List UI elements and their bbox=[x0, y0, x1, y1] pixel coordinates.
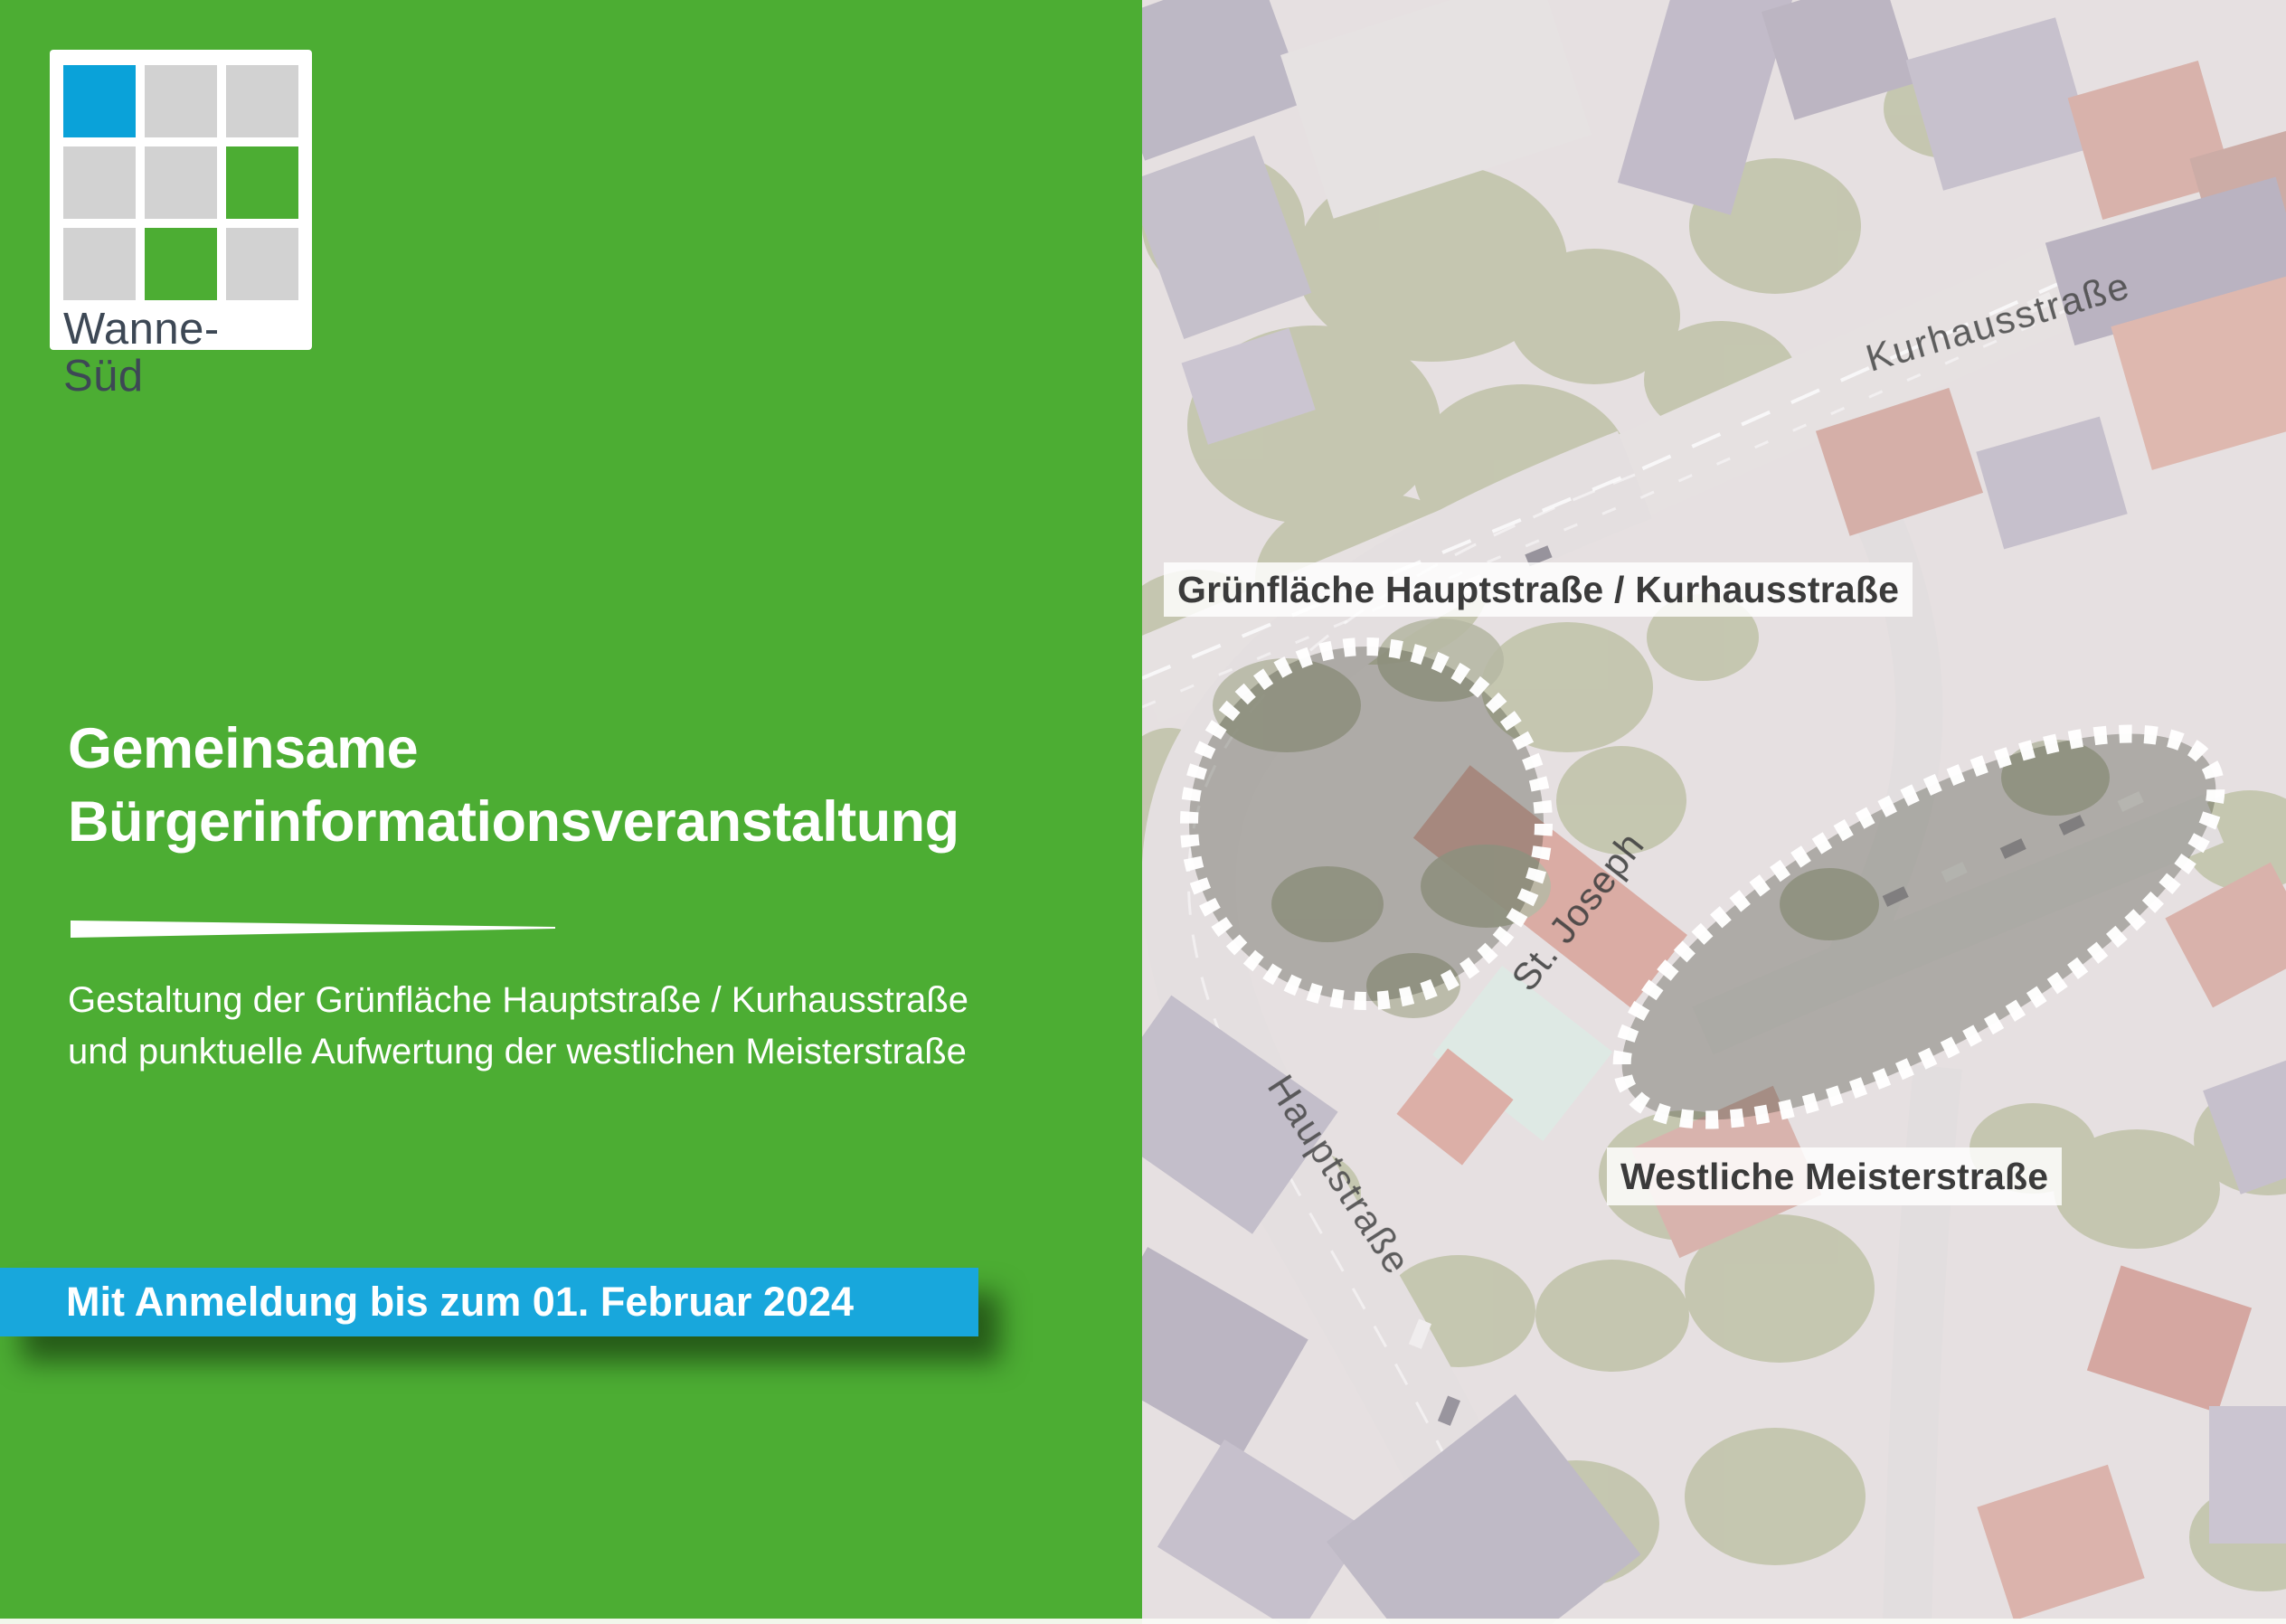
logo-square bbox=[145, 65, 217, 137]
subtitle-line-2: und punktuelle Aufwertung der westlichen… bbox=[68, 1026, 968, 1078]
logo-square bbox=[145, 146, 217, 219]
aerial-map-graphic: Kurhausstraße Hauptstraße St. Joseph bbox=[1142, 0, 2286, 1624]
logo-square bbox=[226, 228, 298, 300]
logo-square bbox=[145, 228, 217, 300]
logo-square bbox=[63, 228, 136, 300]
subtitle: Gestaltung der Grünfläche Hauptstraße / … bbox=[68, 975, 968, 1078]
flyer: Wanne-Süd Gemeinsame Bürgerinformationsv… bbox=[0, 0, 2286, 1624]
logo-wordmark: Wanne-Süd bbox=[63, 306, 298, 400]
left-panel: Wanne-Süd Gemeinsame Bürgerinformationsv… bbox=[0, 0, 1142, 1624]
logo-square bbox=[63, 146, 136, 219]
wanne-sued-logo: Wanne-Süd bbox=[50, 50, 312, 350]
zone-label-meisterstrasse: Westliche Meisterstraße bbox=[1607, 1147, 2062, 1205]
logo-square bbox=[226, 146, 298, 219]
title-line-1: Gemeinsame bbox=[68, 713, 959, 786]
page-title: Gemeinsame Bürgerinformationsveranstaltu… bbox=[68, 713, 959, 859]
logo-grid-icon bbox=[63, 65, 298, 300]
title-line-2: Bürgerinformationsveranstaltung bbox=[68, 786, 959, 859]
zone-label-green-space: Grünfläche Hauptstraße / Kurhausstraße bbox=[1164, 562, 1913, 617]
registration-banner: Mit Anmeldung bis zum 01. Februar 2024 bbox=[0, 1268, 978, 1336]
aerial-map: Kurhausstraße Hauptstraße St. Joseph Grü… bbox=[1142, 0, 2286, 1624]
logo-square bbox=[63, 65, 136, 137]
subtitle-line-1: Gestaltung der Grünfläche Hauptstraße / … bbox=[68, 975, 968, 1026]
bottom-edge bbox=[0, 1619, 2286, 1624]
logo-square bbox=[226, 65, 298, 137]
divider-swoosh bbox=[71, 919, 577, 942]
zone-green-space bbox=[1189, 647, 1544, 1001]
